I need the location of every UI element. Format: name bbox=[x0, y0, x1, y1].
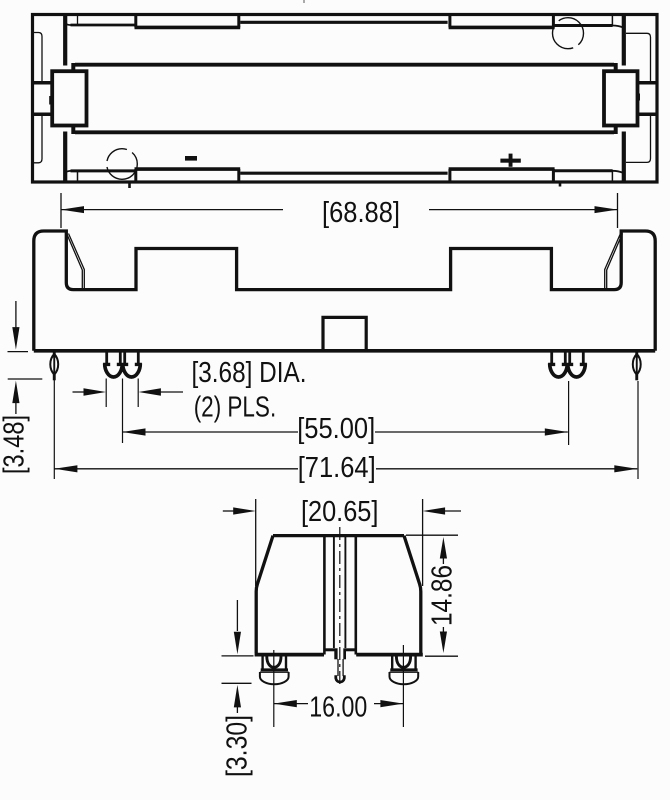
svg-text:16.00: 16.00 bbox=[309, 692, 367, 724]
svg-text:[3.30]: [3.30] bbox=[222, 715, 254, 777]
svg-text:[71.64]: [71.64] bbox=[298, 452, 376, 484]
svg-text:[20.65]: [20.65] bbox=[301, 496, 379, 528]
svg-text:[3.68] DIA.: [3.68] DIA. bbox=[192, 357, 307, 389]
svg-text:[3.48]: [3.48] bbox=[0, 415, 31, 474]
svg-text:14.86: 14.86 bbox=[427, 565, 459, 626]
svg-text:[68.88]: [68.88] bbox=[322, 197, 400, 229]
svg-text:[55.00]: [55.00] bbox=[297, 413, 375, 445]
svg-text:(2) PLS.: (2) PLS. bbox=[194, 392, 277, 424]
